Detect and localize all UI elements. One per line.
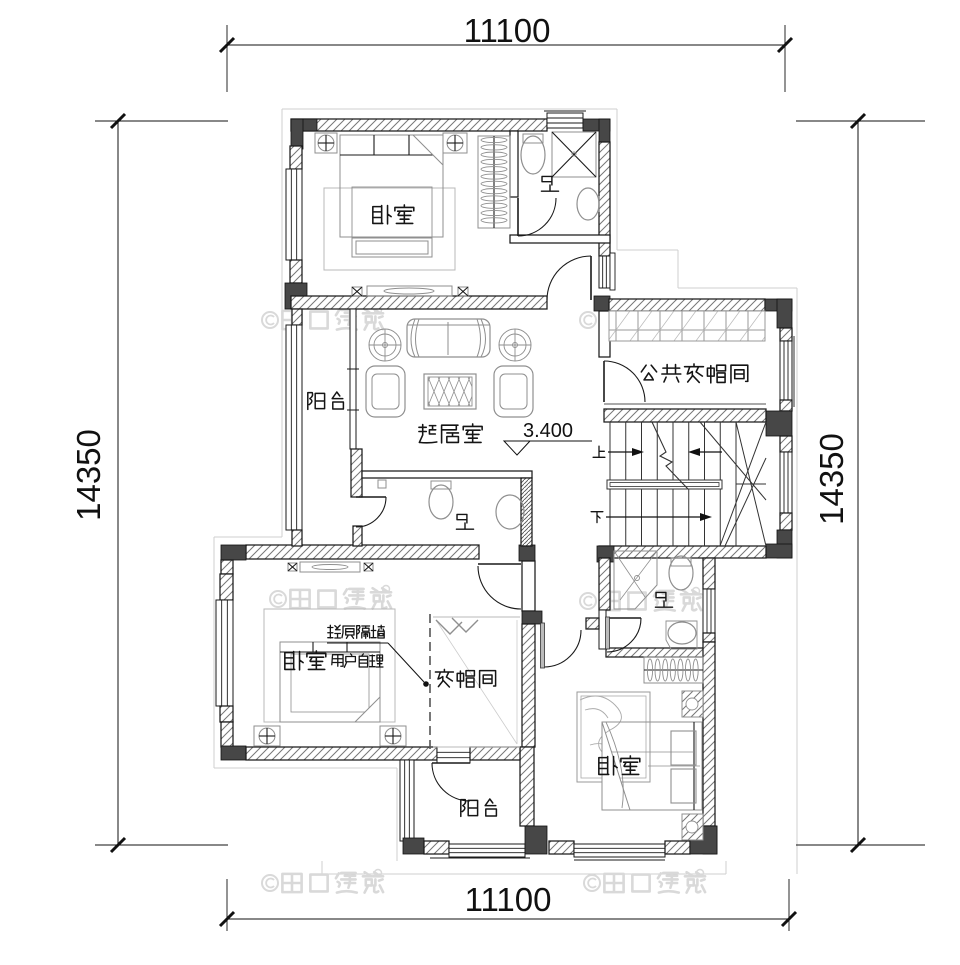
svg-text:11100: 11100 [464, 12, 551, 49]
svg-text:14350: 14350 [70, 429, 107, 521]
svg-text:3.400: 3.400 [523, 420, 573, 442]
svg-text:11100: 11100 [465, 881, 552, 918]
svg-text:14350: 14350 [813, 433, 850, 525]
